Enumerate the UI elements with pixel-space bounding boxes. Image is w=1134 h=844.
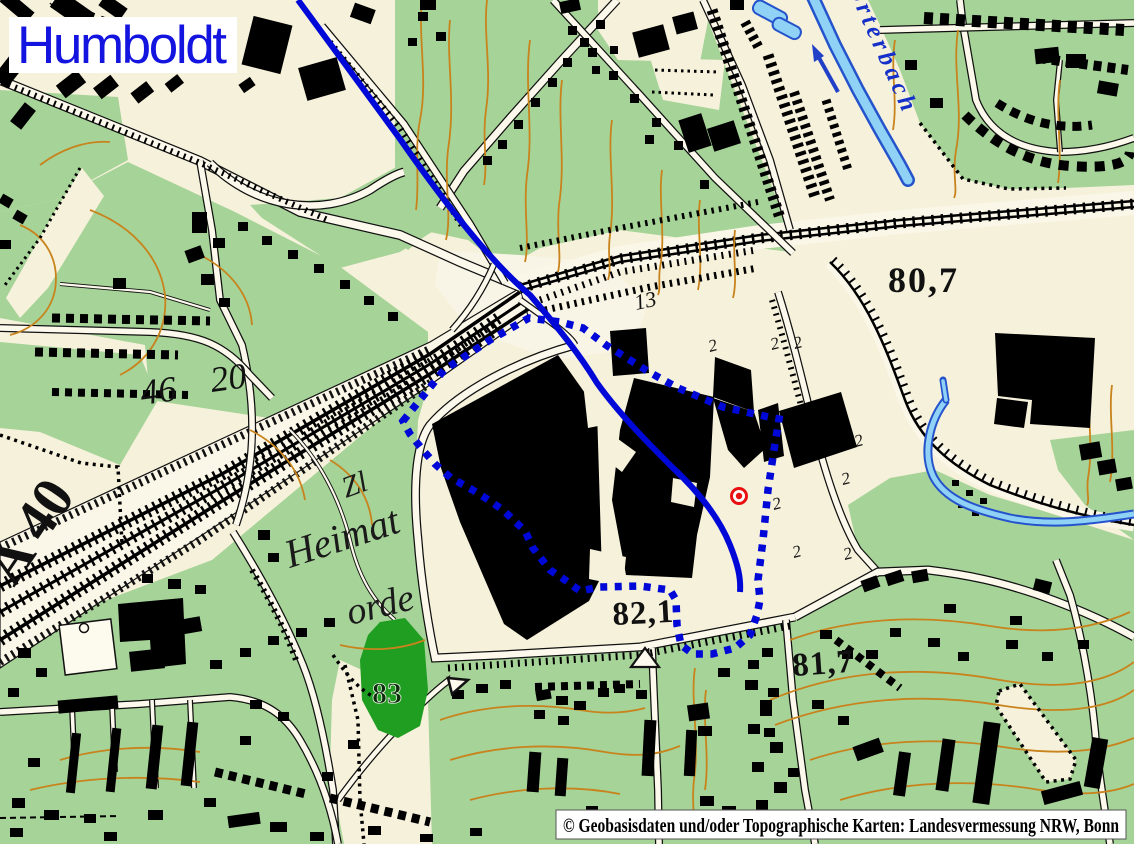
svg-text:80,7: 80,7 xyxy=(888,260,959,300)
svg-text:82,1: 82,1 xyxy=(612,594,676,633)
svg-text:© Geobasisdaten und/oder Topog: © Geobasisdaten und/oder Topographische … xyxy=(563,815,1119,837)
svg-text:20: 20 xyxy=(208,355,249,400)
svg-text:46: 46 xyxy=(138,368,179,413)
svg-text:83: 83 xyxy=(372,677,402,710)
svg-text:Humboldt: Humboldt xyxy=(17,16,227,75)
svg-text:81,7: 81,7 xyxy=(791,644,855,684)
